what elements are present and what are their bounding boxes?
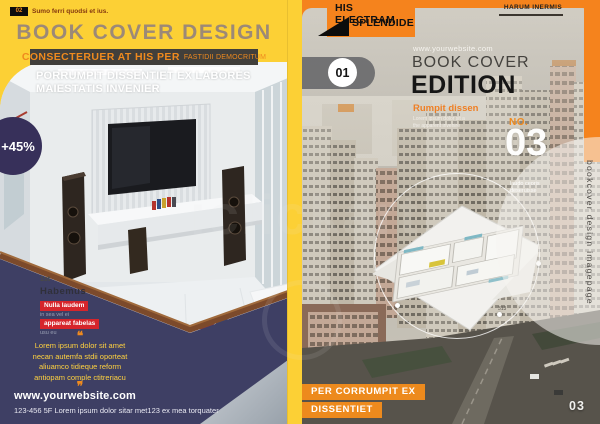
banner-main-text: CONSECTERUER AT HIS PER xyxy=(22,51,180,63)
page-number: 03 xyxy=(569,399,585,413)
cover-title: BOOK COVER DESIGN xyxy=(0,21,288,45)
highlight-banner: CONSECTERUER AT HIS PER FASTIDII DEMOCRI… xyxy=(30,49,258,65)
header-underline xyxy=(499,14,563,17)
edition-note-1: Lorem ipsum dolor sit a xyxy=(413,116,465,122)
edition-title-line1: BOOK COVER xyxy=(412,54,530,72)
front-cover-page: 02 Sumo ferri quodsi et ius. BOOK COVER … xyxy=(0,0,302,424)
cover-subtitle-line2: MAIESTATIS INVENIER xyxy=(36,83,286,95)
chapter-number-badge: 01 xyxy=(328,58,357,87)
edition-note-2: the apparent invenire xyxy=(413,123,460,129)
issue-note-2: deseruisse xyxy=(510,188,537,195)
book-spine xyxy=(287,0,303,424)
red-highlight-tag-1: Nulla laudem xyxy=(40,301,88,311)
book-cover-spread: 02 Sumo ferri quodsi et ius. BOOK COVER … xyxy=(0,0,600,424)
red-highlight-tag-2: appareat fabelas xyxy=(40,319,99,329)
tag-note-1: in sea vel ei xyxy=(40,312,69,318)
footer-tag-2: DISSENTIET xyxy=(302,402,382,418)
banner-sub-text: FASTIDII DEMOCRITUM xyxy=(184,54,266,61)
website-url: www.yourwebsite.com xyxy=(14,390,136,402)
issue-note-1: laudo ceoris xyxy=(510,181,540,188)
website-url-right: www.yourwebsite.com xyxy=(413,44,493,53)
address-line: 123-456 5F Lorem ipsum dolor sitar met12… xyxy=(14,406,219,415)
side-vertical-text: bookcover design imagepage xyxy=(585,160,595,346)
page-tab-number: 02 xyxy=(10,7,28,16)
quote-text: Lorem ipsum dolor sit amet necan autemfa… xyxy=(10,341,150,383)
quote-line-3: aliuamco tidieque reform xyxy=(10,362,150,373)
ribbon-line-2: SPLENDIDE xyxy=(352,17,414,29)
quote-line-2: necan autemfa stdii oporteat xyxy=(10,352,150,363)
footer-tag-1: PER CORRUMPIT EX xyxy=(302,384,425,400)
quote-line-1: Lorem ipsum dolor sit amet xyxy=(10,341,150,352)
edition-title-line2: EDITION xyxy=(411,71,516,100)
back-cover-page: 313 313 xyxy=(302,0,600,424)
header-tagline: HARUM INERMIS xyxy=(500,4,566,11)
rank-heading: Habemus xyxy=(40,286,86,297)
rank-label: 1st xyxy=(40,276,50,283)
cover-subtitle-line1: PORRUMPIT DISSENTIET EX LABORES xyxy=(36,70,286,82)
page-tab-caption: Sumo ferri quodsi et ius. xyxy=(32,7,108,16)
issue-number: 03 xyxy=(505,124,547,162)
edition-subtitle: Rumpit dissen xyxy=(413,103,478,114)
